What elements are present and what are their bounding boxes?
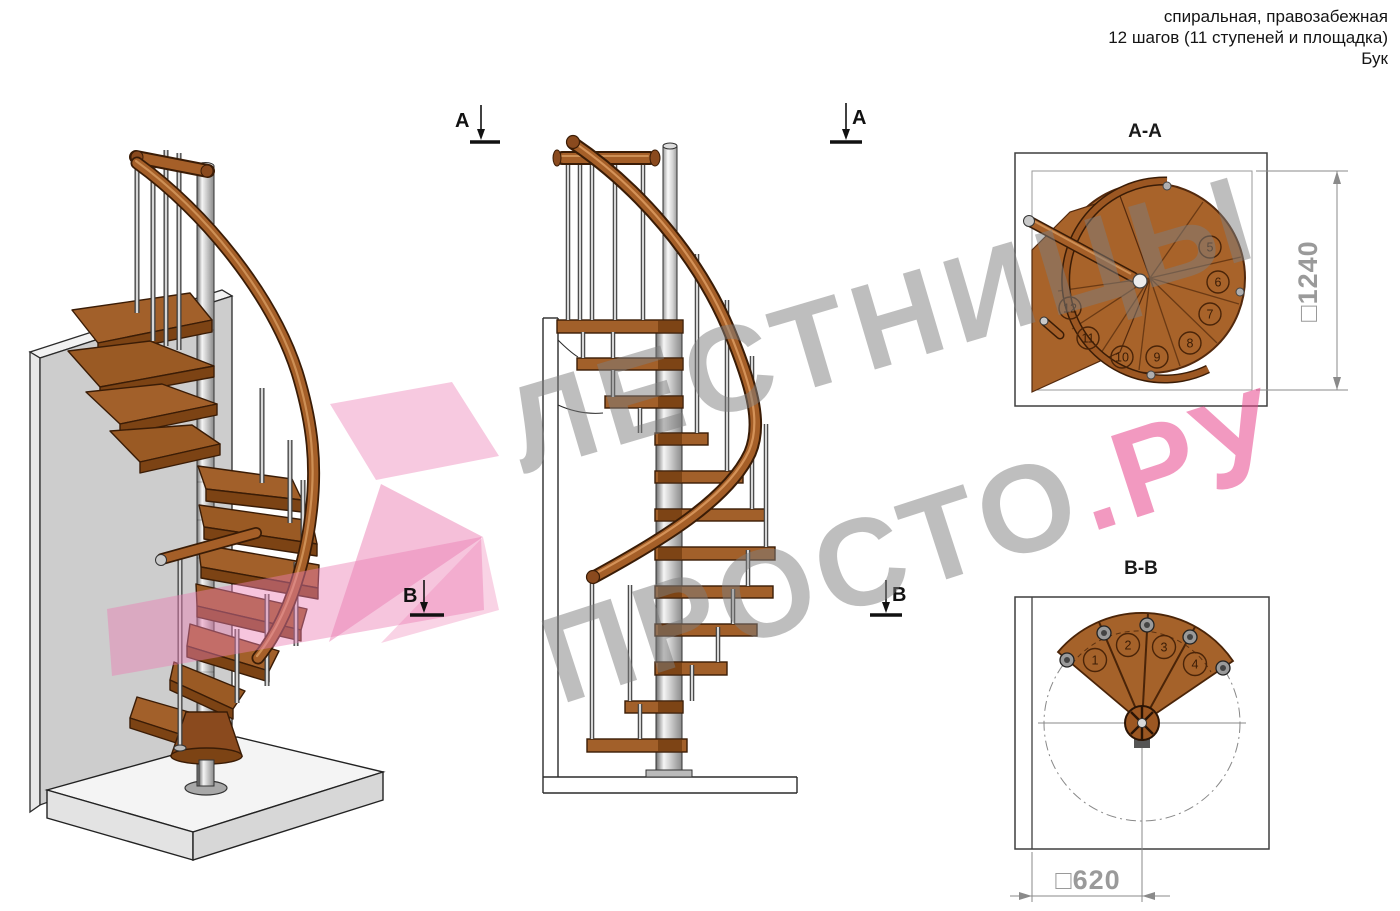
step-number: 7 xyxy=(1207,308,1214,322)
plan-aa-title: А-А xyxy=(1128,121,1162,142)
step-number: 2 xyxy=(1125,639,1132,653)
technical-drawing-canvas: А-А xyxy=(0,0,1400,911)
view-3d-staircase xyxy=(30,150,383,860)
plan-aa-dimension-label: □1240 xyxy=(1293,240,1323,321)
spec-line-material: Бук xyxy=(1108,48,1388,69)
plan-bb-dimension: □620 xyxy=(1010,852,1170,902)
section-marker-a-right: А xyxy=(830,103,866,142)
section-arrow-icon xyxy=(882,602,890,613)
handrail-end-cap xyxy=(156,555,167,566)
section-arrow-icon xyxy=(842,129,850,140)
step-number: 11 xyxy=(1082,332,1095,346)
view-plan-aa: А-А xyxy=(1015,121,1348,406)
section-arrow-icon xyxy=(477,129,485,140)
step-number: 1 xyxy=(1092,654,1099,668)
step-number: 10 xyxy=(1115,351,1129,365)
section-marker-a-left: А xyxy=(455,105,500,142)
step-number: 8 xyxy=(1187,337,1194,351)
step-number: 4 xyxy=(1192,658,1199,672)
view-plan-bb: В-В xyxy=(1010,558,1269,902)
step-number: 9 xyxy=(1154,351,1161,365)
marker-letter: А xyxy=(852,107,866,129)
marker-letter: В xyxy=(403,585,417,607)
step-number: 3 xyxy=(1161,641,1168,655)
marker-letter: А xyxy=(455,110,469,132)
view-elevation xyxy=(543,136,797,794)
step-number: 5 xyxy=(1207,241,1214,255)
spec-line-type: спиральная, правозабежная xyxy=(1108,6,1388,27)
plan-aa-dimension: □1240 xyxy=(1256,171,1348,390)
spec-line-steps: 12 шагов (11 ступеней и площадка) xyxy=(1108,27,1388,48)
step-number: 6 xyxy=(1215,276,1222,290)
drawing-page: А-А xyxy=(0,0,1400,911)
plan-aa-center-ball xyxy=(1133,274,1147,288)
plan-bb-dimension-label: □620 xyxy=(1055,865,1120,895)
section-marker-b-right: В xyxy=(870,580,906,615)
spec-header: спиральная, правозабежная 12 шагов (11 с… xyxy=(1108,6,1388,69)
step-number: 12 xyxy=(1063,302,1077,316)
marker-letter: В xyxy=(892,584,906,606)
plan-bb-title: В-В xyxy=(1124,558,1158,579)
